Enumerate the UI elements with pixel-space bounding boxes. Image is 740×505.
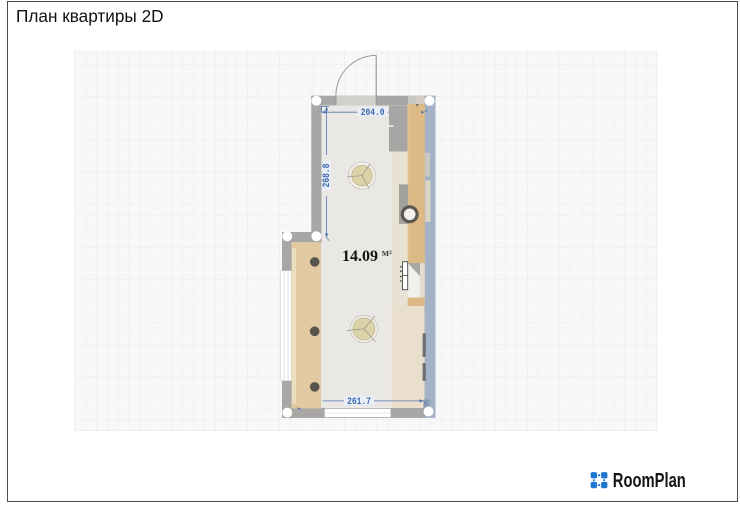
svg-text:268.8: 268.8 [321, 164, 332, 188]
svg-text:RoomPlan: RoomPlan [613, 470, 686, 492]
svg-text:204.0: 204.0 [361, 107, 385, 118]
svg-text:261.7: 261.7 [347, 396, 371, 407]
svg-text:14.09: 14.09 [342, 248, 378, 265]
